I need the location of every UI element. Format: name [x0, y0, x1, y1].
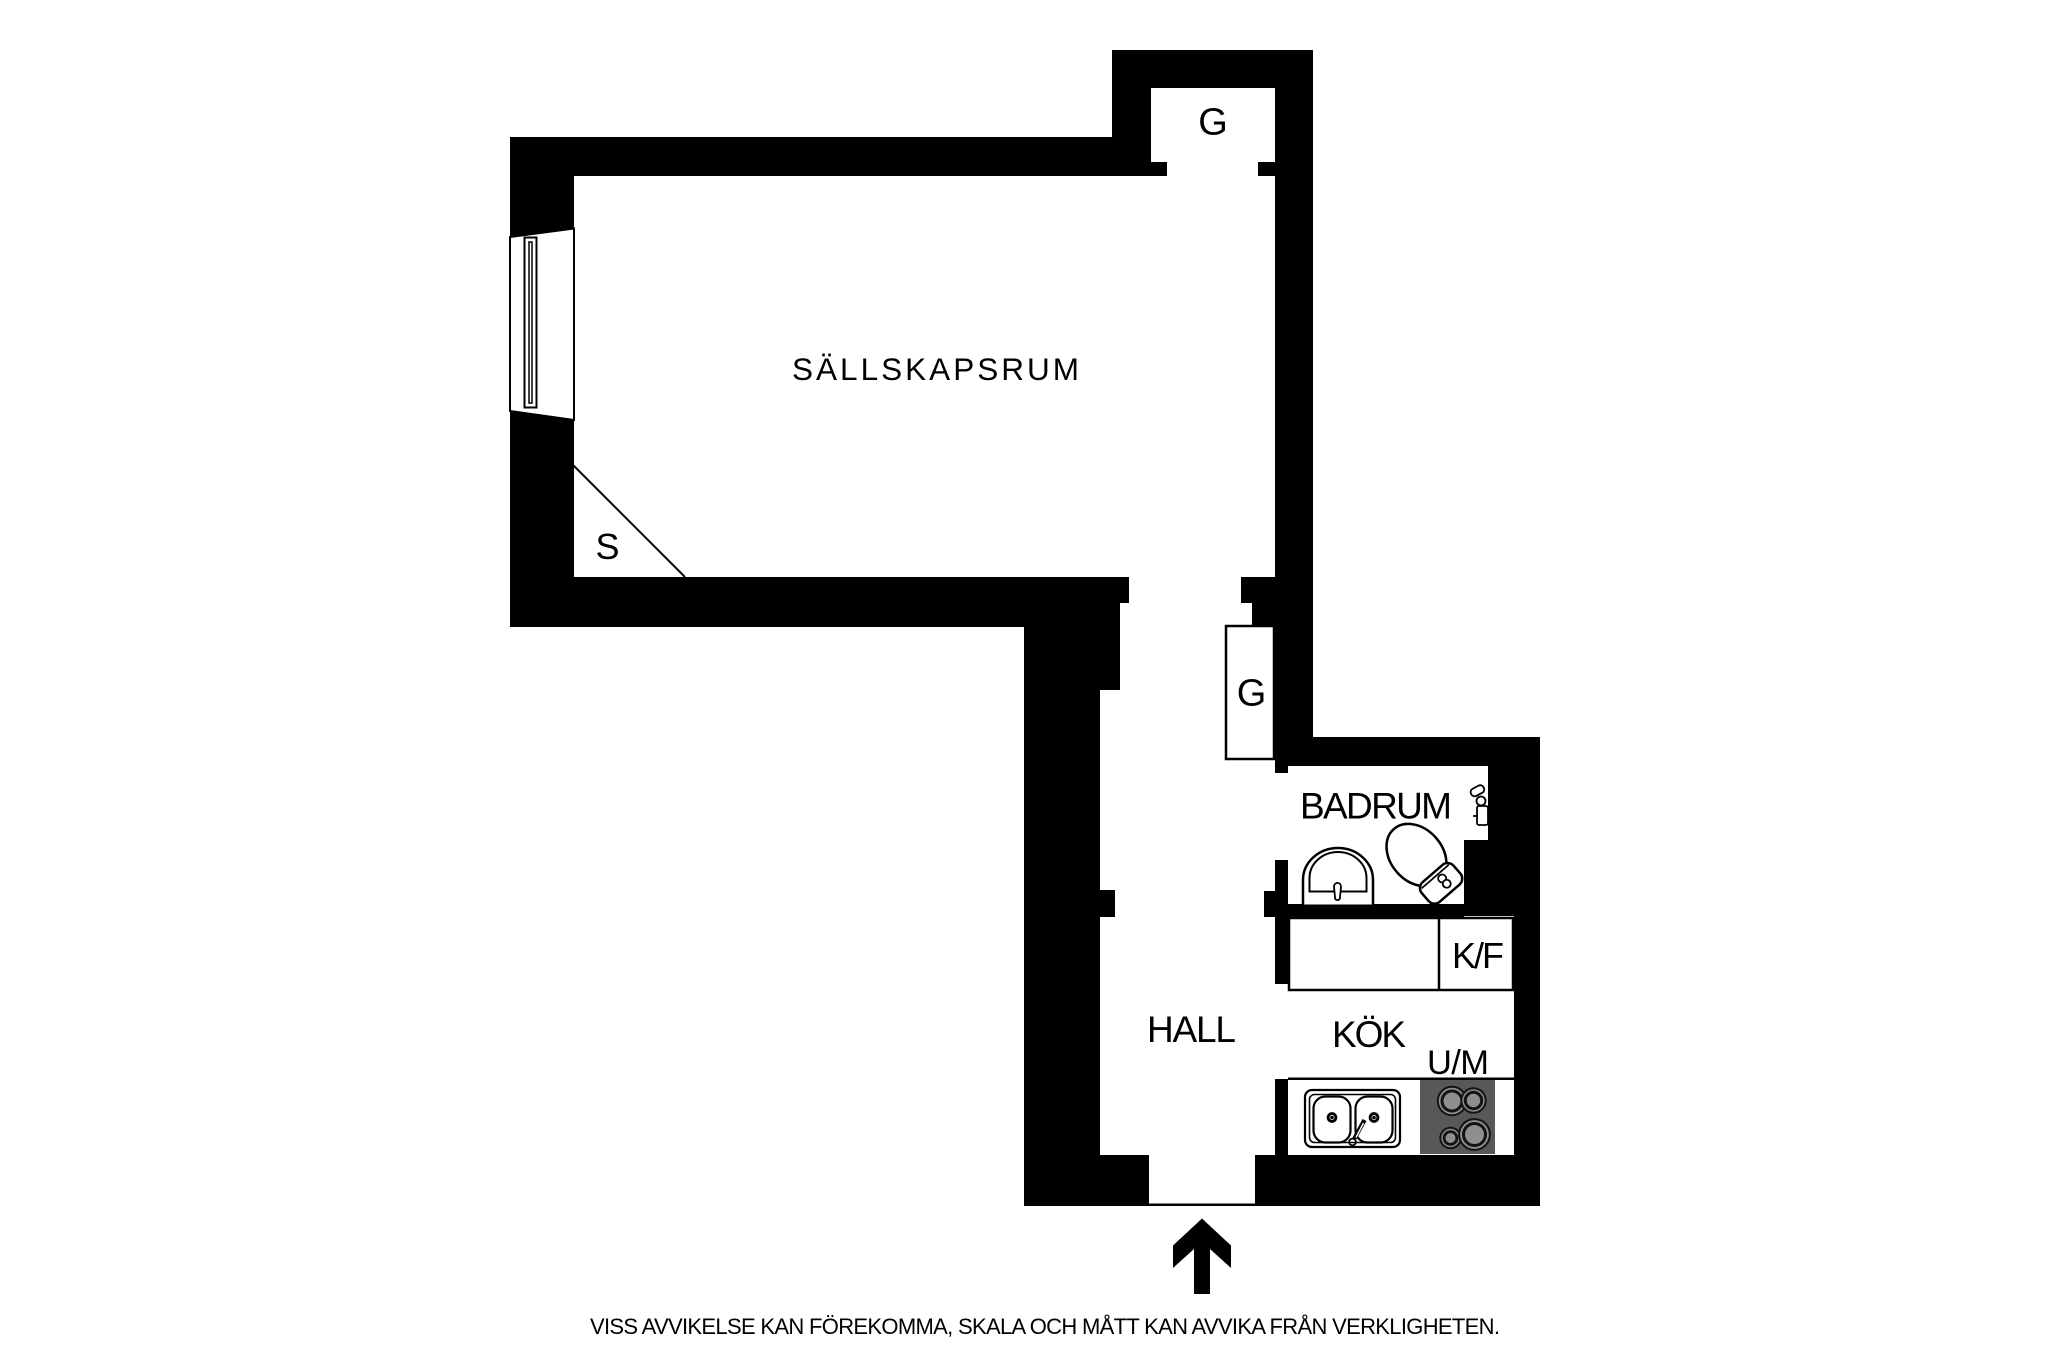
svg-text:KÖK: KÖK — [1332, 1014, 1406, 1055]
svg-text:K/F: K/F — [1452, 935, 1504, 976]
svg-text:G: G — [1237, 673, 1267, 715]
svg-text:VISS AVVIKELSE KAN FÖREKOMMA,: VISS AVVIKELSE KAN FÖREKOMMA, SKALA OCH … — [590, 1314, 1500, 1339]
svg-text:S: S — [595, 526, 619, 567]
svg-text:HALL: HALL — [1147, 1009, 1236, 1050]
svg-text:SÄLLSKAPSRUM: SÄLLSKAPSRUM — [792, 351, 1079, 387]
svg-text:G: G — [1198, 102, 1228, 144]
svg-text:U/M: U/M — [1427, 1044, 1489, 1082]
svg-text:BADRUM: BADRUM — [1300, 786, 1452, 827]
